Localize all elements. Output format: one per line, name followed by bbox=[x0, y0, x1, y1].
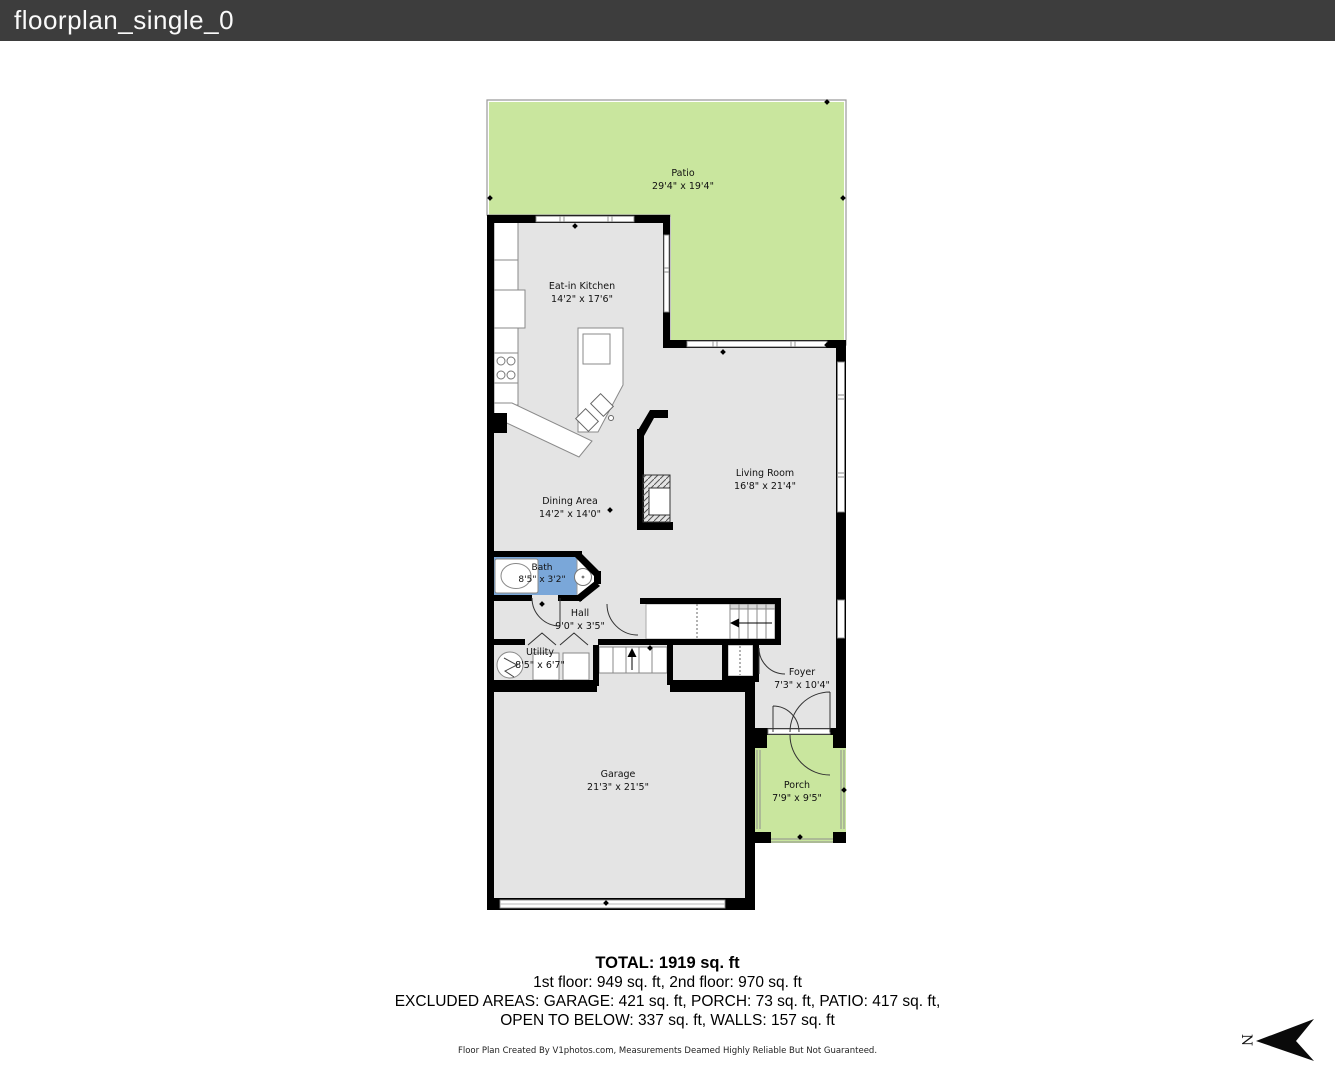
firebox bbox=[649, 488, 670, 515]
room-label-porch: Porch7'9" x 9'5" bbox=[772, 779, 822, 805]
living-patio-window bbox=[687, 341, 827, 347]
room-label-garage: Garage21'3" x 21'5" bbox=[587, 768, 649, 794]
room-label-living: Living Room16'8" x 21'4" bbox=[734, 467, 796, 493]
kitchen-patio-door bbox=[664, 235, 669, 312]
total-area: TOTAL: 1919 sq. ft bbox=[0, 953, 1335, 973]
area-summary: TOTAL: 1919 sq. ft 1st floor: 949 sq. ft… bbox=[0, 953, 1335, 1030]
stairs-main bbox=[646, 604, 775, 639]
room-label-dining: Dining Area14'2" x 14'0" bbox=[539, 495, 601, 521]
excluded-areas: EXCLUDED AREAS: GARAGE: 421 sq. ft, PORC… bbox=[0, 992, 1335, 1011]
title-bar: floorplan_single_0 bbox=[0, 0, 1335, 41]
stove bbox=[494, 353, 518, 383]
room-label-bath: Bath8'5" x 3'2" bbox=[518, 562, 565, 586]
kitchen-window bbox=[536, 216, 634, 222]
living-side-window bbox=[838, 362, 845, 512]
room-label-kitchen: Eat-in Kitchen14'2" x 17'6" bbox=[549, 280, 615, 306]
fridge bbox=[494, 290, 525, 328]
foyer-closet bbox=[728, 645, 753, 676]
floorplan-viewer: floorplan_single_0 bbox=[0, 0, 1335, 1080]
credit-line: Floor Plan Created By V1photos.com, Meas… bbox=[0, 1046, 1335, 1056]
island-cooktop bbox=[583, 334, 610, 364]
dryer bbox=[563, 653, 589, 680]
room-label-hall: Hall9'0" x 3'5" bbox=[555, 607, 605, 633]
north-arrow: N bbox=[1238, 1014, 1328, 1066]
room-label-patio: Patio29'4" x 19'4" bbox=[652, 167, 714, 193]
room-label-foyer: Foyer7'3" x 10'4" bbox=[774, 666, 830, 692]
floor-areas: 1st floor: 949 sq. ft, 2nd floor: 970 sq… bbox=[0, 973, 1335, 992]
floorplan-drawing: Patio29'4" x 19'4" Eat-in Kitchen14'2" x… bbox=[480, 95, 850, 917]
page-title: floorplan_single_0 bbox=[14, 5, 234, 36]
foyer-side-window bbox=[838, 600, 845, 638]
excluded-areas2: OPEN TO BELOW: 337 sq. ft, WALLS: 157 sq… bbox=[0, 1011, 1335, 1030]
stairs-garage bbox=[599, 647, 667, 673]
room-label-utility: Utility8'5" x 6'7" bbox=[515, 646, 565, 672]
north-letter: N bbox=[1238, 1034, 1254, 1046]
